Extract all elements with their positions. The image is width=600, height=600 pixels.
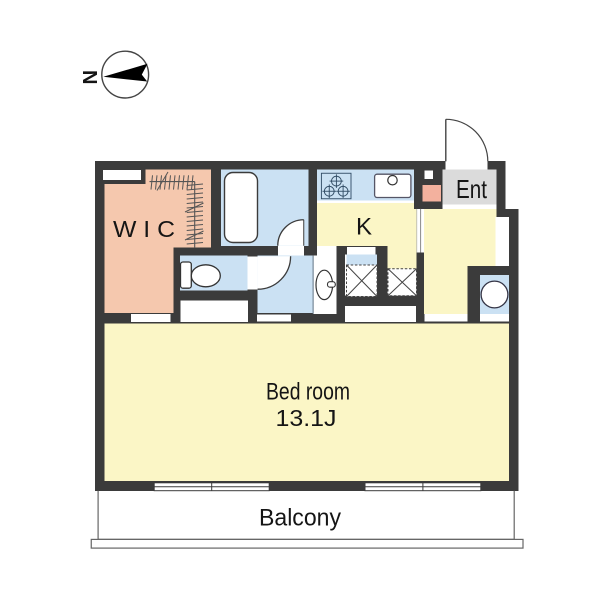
svg-text:13.1J: 13.1J	[276, 405, 337, 431]
svg-text:K: K	[356, 214, 372, 241]
svg-text:N: N	[80, 70, 102, 84]
svg-text:Ent: Ent	[456, 174, 488, 204]
svg-text:Balcony: Balcony	[259, 505, 341, 532]
svg-text:W I C: W I C	[113, 216, 175, 242]
svg-text:Bed room: Bed room	[266, 379, 350, 406]
